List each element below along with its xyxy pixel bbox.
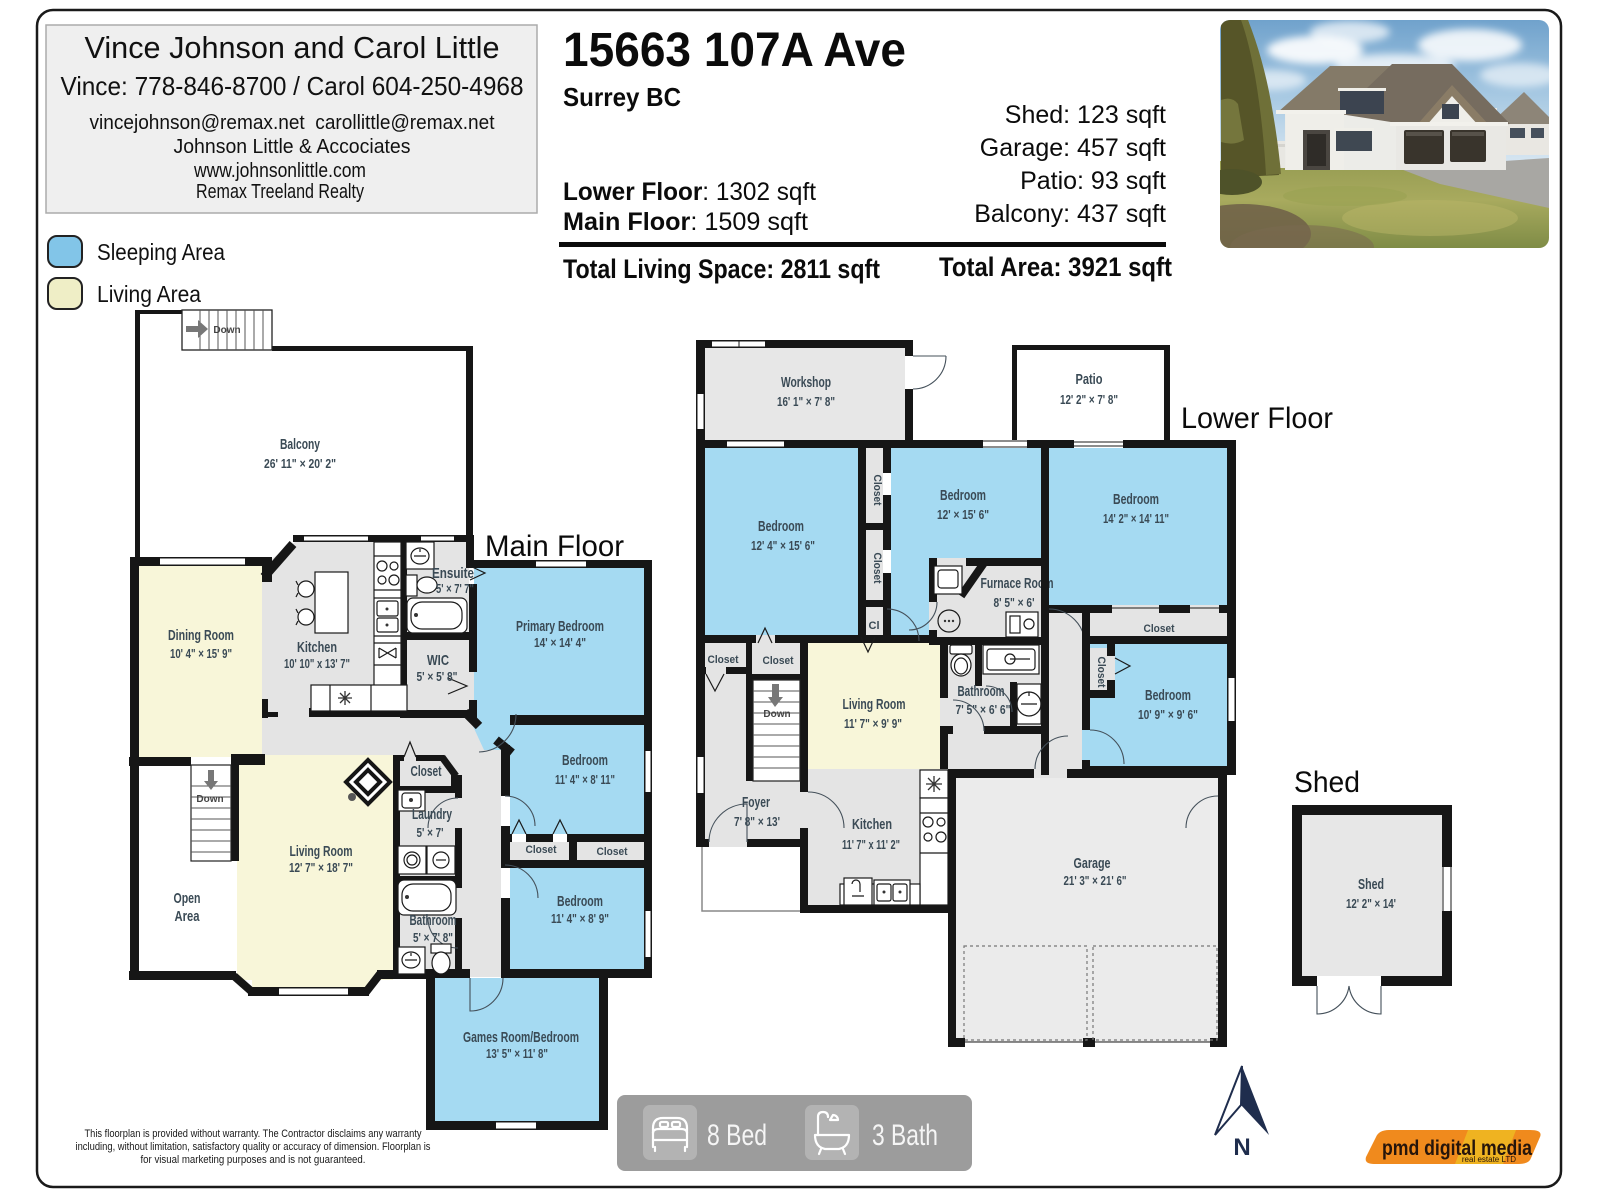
svg-text:N: N bbox=[1233, 1134, 1250, 1161]
svg-text:Dining Room: Dining Room bbox=[168, 627, 234, 644]
svg-text:Closet: Closet bbox=[763, 655, 794, 667]
svg-text:Closet: Closet bbox=[1095, 657, 1107, 688]
svg-text:Open: Open bbox=[174, 890, 201, 907]
svg-text:Lower Floor: 1302 sqft: Lower Floor: 1302 sqft bbox=[563, 178, 816, 206]
svg-text:12' × 15' 6": 12' × 15' 6" bbox=[937, 507, 989, 522]
svg-text:10' 4" × 15' 9": 10' 4" × 15' 9" bbox=[170, 646, 232, 661]
svg-text:Closet: Closet bbox=[597, 846, 628, 858]
svg-text:Living Room: Living Room bbox=[290, 843, 353, 860]
svg-text:Balcony: Balcony bbox=[280, 436, 320, 453]
svg-text:7' 5" × 6' 6": 7' 5" × 6' 6" bbox=[956, 702, 1011, 717]
svg-text:Games Room/Bedroom: Games Room/Bedroom bbox=[463, 1029, 579, 1046]
svg-text:10' 10" x 13' 7": 10' 10" x 13' 7" bbox=[284, 656, 350, 671]
svg-text:Shed: Shed bbox=[1358, 876, 1384, 893]
svg-text:WIC: WIC bbox=[427, 652, 449, 669]
svg-text:5' × 5' 8": 5' × 5' 8" bbox=[417, 669, 458, 684]
svg-text:Bedroom: Bedroom bbox=[758, 518, 804, 535]
svg-text:for visual marketing purposes: for visual marketing purposes and is not… bbox=[141, 1154, 366, 1166]
svg-text:Closet: Closet bbox=[871, 475, 883, 506]
svg-text:12' 2" × 14': 12' 2" × 14' bbox=[1346, 896, 1396, 911]
svg-text:including, without limitation,: including, without limitation, satisfact… bbox=[76, 1141, 431, 1153]
svg-text:Garage: 457 sqft: Garage: 457 sqft bbox=[980, 134, 1166, 162]
svg-text:Closet: Closet bbox=[1144, 623, 1175, 635]
svg-text:Surrey BC: Surrey BC bbox=[563, 82, 681, 112]
svg-text:16' 1" × 7' 8": 16' 1" × 7' 8" bbox=[777, 394, 835, 409]
svg-text:26' 11" × 20' 2": 26' 11" × 20' 2" bbox=[264, 456, 336, 471]
svg-text:Total Living Space: 2811 sqft: Total Living Space: 2811 sqft bbox=[563, 254, 880, 284]
svg-text:14' 2" × 14' 11": 14' 2" × 14' 11" bbox=[1103, 511, 1169, 526]
svg-text:5' × 7' 8": 5' × 7' 8" bbox=[413, 930, 453, 945]
svg-text:Kitchen: Kitchen bbox=[297, 639, 337, 656]
svg-text:8' 5" × 6': 8' 5" × 6' bbox=[994, 595, 1035, 610]
svg-text:11' 7" x 11' 2": 11' 7" x 11' 2" bbox=[842, 837, 900, 852]
svg-text:Patio: 93 sqft: Patio: 93 sqft bbox=[1020, 167, 1166, 195]
svg-text:Shed: Shed bbox=[1294, 766, 1360, 799]
svg-text:Total Area: 3921 sqft: Total Area: 3921 sqft bbox=[939, 252, 1172, 282]
svg-text:12' 4" × 15' 6": 12' 4" × 15' 6" bbox=[751, 538, 815, 553]
svg-text:Vince Johnson and Carol Little: Vince Johnson and Carol Little bbox=[85, 30, 500, 65]
svg-text:7' 8" × 13': 7' 8" × 13' bbox=[734, 814, 780, 829]
svg-text:This floorplan is provided wit: This floorplan is provided without warra… bbox=[85, 1128, 422, 1140]
svg-text:21' 3" × 21' 6": 21' 3" × 21' 6" bbox=[1064, 873, 1127, 888]
svg-text:Closet: Closet bbox=[411, 763, 442, 780]
svg-text:15663 107A Ave: 15663 107A Ave bbox=[563, 24, 906, 77]
svg-text:vincejohnson@remax.net caroll: vincejohnson@remax.net carollittle@remax… bbox=[90, 112, 495, 134]
svg-text:14' × 14' 4": 14' × 14' 4" bbox=[534, 635, 586, 650]
svg-text:Down: Down bbox=[196, 794, 223, 805]
svg-text:11' 4" × 8' 11": 11' 4" × 8' 11" bbox=[555, 772, 615, 787]
svg-text:13' 5" × 11' 8": 13' 5" × 11' 8" bbox=[486, 1046, 548, 1061]
svg-text:Primary Bedroom: Primary Bedroom bbox=[516, 618, 604, 635]
svg-text:www.johnsonlittle.com: www.johnsonlittle.com bbox=[193, 160, 366, 182]
svg-text:Laundry: Laundry bbox=[412, 806, 452, 823]
svg-text:Bedroom: Bedroom bbox=[1145, 687, 1191, 704]
svg-text:Bedroom: Bedroom bbox=[940, 487, 986, 504]
svg-text:11' 4" × 8' 9": 11' 4" × 8' 9" bbox=[551, 911, 609, 926]
svg-text:Kitchen: Kitchen bbox=[852, 816, 892, 833]
svg-text:Sleeping Area: Sleeping Area bbox=[97, 239, 225, 265]
svg-text:Remax Treeland Realty: Remax Treeland Realty bbox=[196, 181, 364, 203]
svg-text:Living Area: Living Area bbox=[97, 281, 201, 307]
svg-text:Area: Area bbox=[175, 908, 200, 925]
svg-text:Closet: Closet bbox=[871, 553, 883, 584]
svg-text:Cl: Cl bbox=[869, 620, 880, 632]
svg-text:Bedroom: Bedroom bbox=[1113, 491, 1159, 508]
svg-text:Workshop: Workshop bbox=[781, 374, 831, 391]
svg-text:Garage: Garage bbox=[1074, 855, 1111, 872]
svg-text:Main Floor: Main Floor bbox=[485, 530, 624, 563]
svg-text:Balcony: 437 sqft: Balcony: 437 sqft bbox=[974, 200, 1166, 228]
svg-text:Bedroom: Bedroom bbox=[557, 893, 603, 910]
svg-text:Living Room: Living Room bbox=[843, 696, 906, 713]
svg-text:Johnson Little & Accociates: Johnson Little & Accociates bbox=[174, 136, 411, 158]
svg-text:Closet: Closet bbox=[708, 654, 739, 666]
svg-text:12' 2" × 7' 8": 12' 2" × 7' 8" bbox=[1060, 392, 1118, 407]
svg-text:Bathroom: Bathroom bbox=[958, 683, 1005, 700]
svg-text:Closet: Closet bbox=[526, 844, 557, 856]
svg-text:Lower Floor: Lower Floor bbox=[1181, 402, 1333, 435]
svg-text:Bathroom: Bathroom bbox=[410, 912, 457, 929]
svg-text:Patio: Patio bbox=[1076, 371, 1103, 388]
svg-text:real estate LTD: real estate LTD bbox=[1462, 1155, 1516, 1164]
svg-text:5' × 7': 5' × 7' bbox=[417, 825, 444, 840]
svg-text:Foyer: Foyer bbox=[742, 794, 770, 811]
svg-text:Vince: 778-846-8700 / Carol 60: Vince: 778-846-8700 / Carol 604-250-4968 bbox=[61, 71, 524, 101]
svg-text:Main Floor: 1509 sqft: Main Floor: 1509 sqft bbox=[563, 208, 808, 236]
svg-text:12' 7" × 18' 7": 12' 7" × 18' 7" bbox=[289, 860, 353, 875]
svg-text:Bedroom: Bedroom bbox=[562, 752, 608, 769]
svg-text:8 Bed: 8 Bed bbox=[707, 1119, 767, 1152]
svg-text:5' × 7' 7": 5' × 7' 7" bbox=[436, 581, 474, 596]
svg-text:Ensuite: Ensuite bbox=[432, 565, 474, 582]
svg-text:Down: Down bbox=[763, 709, 790, 720]
svg-text:10' 9" × 9' 6": 10' 9" × 9' 6" bbox=[1138, 707, 1198, 722]
svg-text:Shed: 123 sqft: Shed: 123 sqft bbox=[1005, 101, 1166, 129]
svg-text:Down: Down bbox=[213, 325, 240, 336]
svg-text:3 Bath: 3 Bath bbox=[872, 1119, 938, 1152]
svg-text:11' 7" × 9' 9": 11' 7" × 9' 9" bbox=[844, 716, 902, 731]
